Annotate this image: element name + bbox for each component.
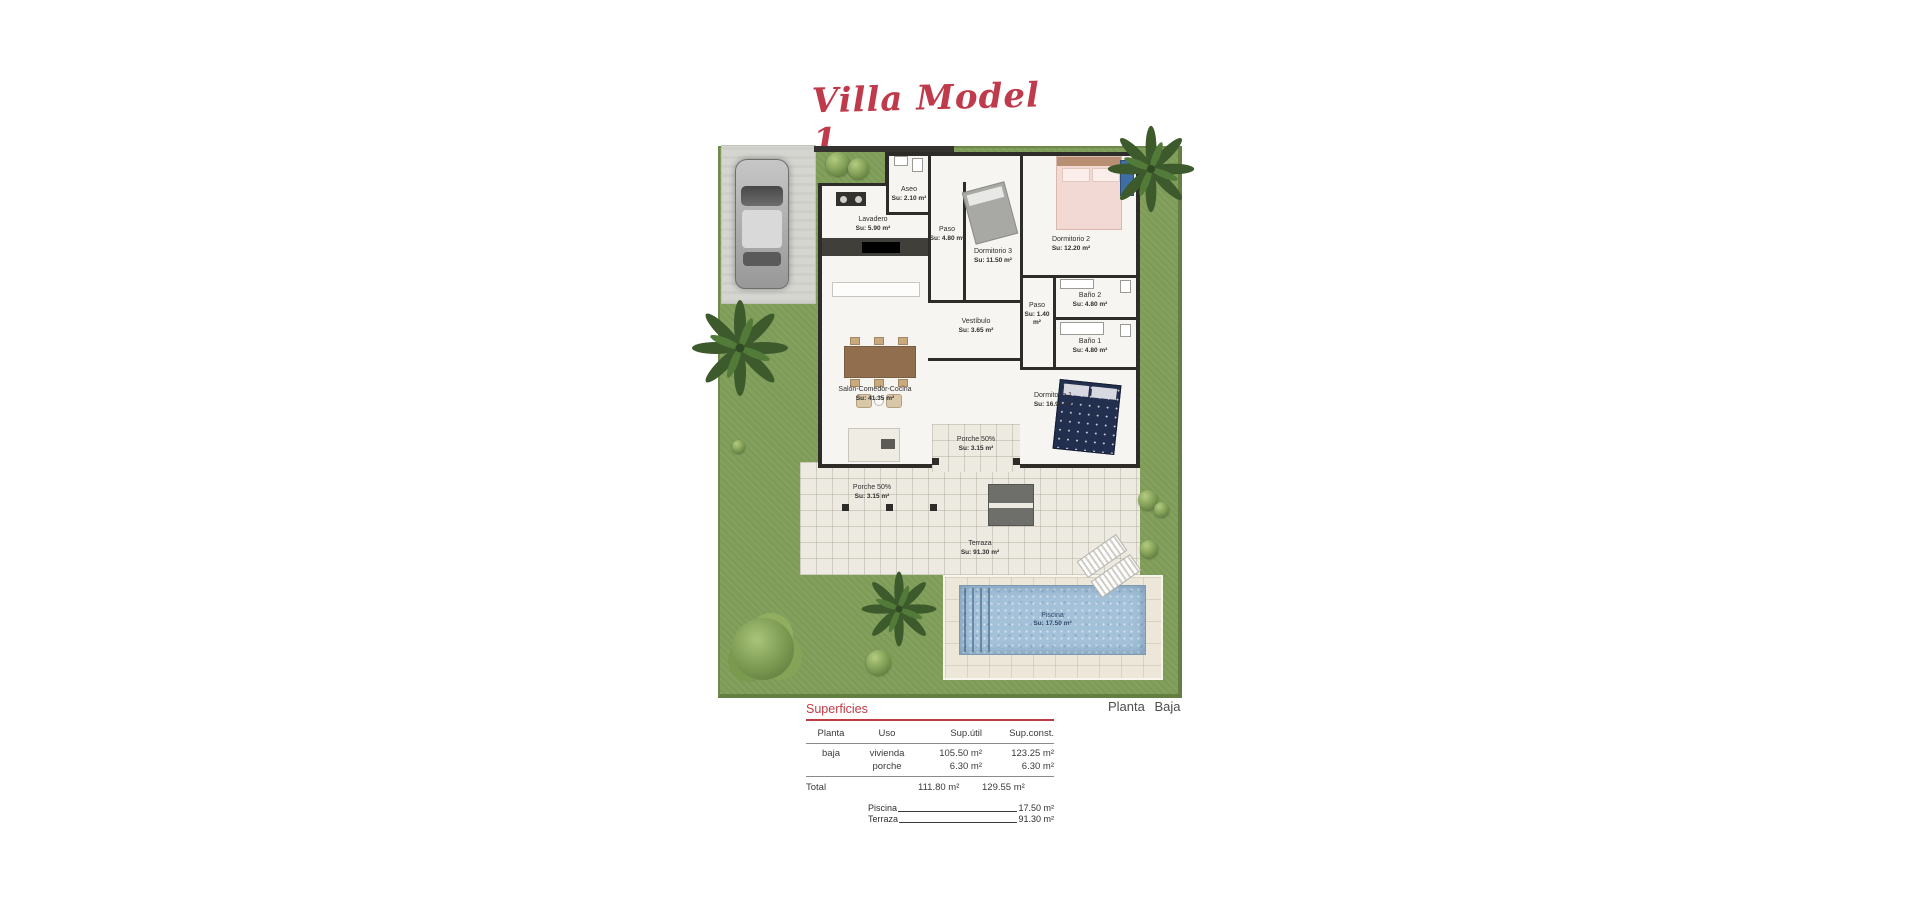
pool: Piscina Su: 17.50 m² [959, 585, 1146, 655]
dining-chair [850, 337, 860, 345]
car-rear-window [743, 252, 781, 266]
room-label-dormitorio-1: Dormitorio 1 Su: 16.95 m² [1022, 392, 1084, 409]
note-row-piscina: Piscina 17.50 m² [868, 802, 1054, 813]
palm-tree-icon [860, 570, 938, 648]
bush [866, 650, 891, 675]
wall-segment [886, 152, 889, 214]
room-label-paso: Paso Su: 4.80 m² [928, 226, 966, 243]
surfaces-heading: Superficies [806, 702, 1054, 721]
room-name: Terraza [950, 540, 1010, 549]
wall-segment [1020, 275, 1140, 278]
aseo-sink [894, 156, 908, 166]
room-name: Vestíbulo [946, 318, 1006, 327]
wall-segment [1053, 317, 1140, 320]
total-util: 111.80 m² [918, 782, 982, 793]
room-area: Su: 17.50 m² [1013, 620, 1093, 628]
bath2-toilet [1120, 280, 1131, 293]
room-area: Su: 5.90 m² [833, 225, 913, 233]
cell-planta [806, 761, 856, 772]
room-area: Su: 4.80 m² [928, 235, 966, 243]
outdoor-furniture-set [988, 484, 1034, 526]
cell-util: 105.50 m² [918, 748, 982, 759]
bush [732, 440, 745, 453]
note-label: Terraza [868, 814, 898, 824]
driveway [721, 145, 816, 304]
room-name: Aseo [888, 186, 930, 195]
room-label-bano-2: Baño 2 Su: 4.80 m² [1062, 292, 1118, 309]
car-windshield [741, 186, 783, 206]
bush [1154, 502, 1169, 517]
cooktop [862, 242, 900, 253]
total-spacer [856, 782, 918, 793]
room-label-paso-small: Paso Su: 1.40 m² [1021, 302, 1053, 327]
porch-column [1013, 458, 1020, 465]
room-area: Su: 2.10 m² [888, 195, 930, 203]
bath1-tub [1060, 322, 1104, 335]
room-area: Su: 4.80 m² [1062, 347, 1118, 355]
room-label-porche-left: Porche 50% Su: 3.15 m² [844, 484, 900, 501]
dining-chair [898, 337, 908, 345]
note-row-terraza: Terraza 91.30 m² [868, 813, 1054, 824]
palm-tree-icon [1106, 124, 1196, 214]
porch-column [886, 504, 893, 511]
room-label-lavadero: Lavadero Su: 5.90 m² [833, 216, 913, 233]
page-title: Villa Model 1 [811, 75, 1072, 134]
room-area: Su: 91.30 m² [950, 549, 1010, 557]
cell-const: 123.25 m² [982, 748, 1054, 759]
room-label-aseo: Aseo Su: 2.10 m² [888, 186, 930, 203]
aseo-toilet [912, 158, 923, 172]
floor-label: Planta Baja [1108, 699, 1181, 714]
room-area: Su: 4.80 m² [1062, 301, 1118, 309]
washer-dryer [836, 192, 866, 206]
room-label-dormitorio-3: Dormitorio 3 Su: 11.50 m² [963, 248, 1023, 265]
car-top-view-icon [735, 159, 789, 289]
wall-segment [928, 300, 1023, 303]
col-header-uso: Uso [856, 728, 918, 744]
room-area: Su: 41.35 m² [828, 395, 922, 403]
room-area: Su: 1.40 m² [1021, 311, 1053, 327]
room-name: Salón-Comedor-Cocina [828, 386, 922, 395]
bed-dormitorio-1 [1053, 379, 1122, 455]
cell-planta: baja [806, 748, 856, 759]
surfaces-table: Superficies Planta Uso Sup.útil Sup.cons… [806, 702, 1054, 793]
room-area: Su: 16.95 m² [1022, 401, 1084, 409]
room-name: Baño 1 [1062, 338, 1118, 347]
kitchen-island [832, 282, 920, 297]
porch-column [930, 504, 937, 511]
room-name: Porche 50% [844, 484, 900, 493]
car-roof [742, 210, 782, 248]
pool-steps [964, 588, 994, 652]
col-header-planta: Planta [806, 728, 856, 744]
porch-column [842, 504, 849, 511]
room-name: Dormitorio 3 [963, 248, 1023, 257]
room-name: Porche 50% [948, 436, 1004, 445]
room-area: Su: 12.20 m² [1040, 245, 1102, 253]
porch-column [932, 458, 939, 465]
note-leader-line [899, 822, 1017, 823]
room-area: Su: 11.50 m² [963, 257, 1023, 265]
surfaces-grid: Planta Uso Sup.útil Sup.const. baja vivi… [806, 728, 1054, 772]
col-header-sup-const: Sup.const. [982, 728, 1054, 744]
palm-tree-icon [690, 298, 790, 398]
total-const: 129.55 m² [982, 782, 1054, 793]
measure-notes: Piscina 17.50 m² Terraza 91.30 m² [868, 802, 1054, 824]
wall-segment [1020, 367, 1140, 370]
room-label-terraza: Terraza Su: 91.30 m² [950, 540, 1010, 557]
wall-segment [1053, 275, 1056, 367]
room-name: Paso [1021, 302, 1053, 311]
sofa [848, 428, 900, 462]
room-area: Su: 3.15 m² [844, 493, 900, 501]
room-name: Dormitorio 2 [1040, 236, 1102, 245]
dining-table [844, 346, 916, 378]
room-area: Su: 3.65 m² [946, 327, 1006, 335]
cell-uso: porche [856, 761, 918, 772]
room-label-vestibulo: Vestíbulo Su: 3.65 m² [946, 318, 1006, 335]
room-name: Baño 2 [1062, 292, 1118, 301]
surfaces-total-row: Total 111.80 m² 129.55 m² [806, 776, 1054, 793]
note-value: 91.30 m² [1018, 814, 1054, 824]
tree [732, 618, 794, 680]
room-name: Paso [928, 226, 966, 235]
total-label: Total [806, 782, 856, 793]
bush [826, 152, 850, 176]
room-label-piscina: Piscina Su: 17.50 m² [1013, 612, 1093, 629]
bush [1140, 540, 1158, 558]
room-label-porche-center: Porche 50% Su: 3.15 m² [948, 436, 1004, 453]
cell-uso: vivienda [856, 748, 918, 759]
room-name: Dormitorio 1 [1022, 392, 1084, 401]
room-label-salon-comedor-cocina: Salón-Comedor-Cocina Su: 41.35 m² [828, 386, 922, 403]
bush [848, 158, 869, 179]
bath2-sink [1060, 279, 1094, 289]
page: Villa Model 1 Piscina Su: 17.50 m² [0, 0, 1920, 920]
room-name: Piscina [1013, 612, 1093, 621]
col-header-sup-util: Sup.útil [918, 728, 982, 744]
room-name: Lavadero [833, 216, 913, 225]
cell-const: 6.30 m² [982, 761, 1054, 772]
note-leader-line [898, 811, 1017, 812]
wall-segment [886, 212, 931, 215]
cell-util: 6.30 m² [918, 761, 982, 772]
room-label-bano-1: Baño 1 Su: 4.80 m² [1062, 338, 1118, 355]
note-value: 17.50 m² [1018, 803, 1054, 813]
room-area: Su: 3.15 m² [948, 445, 1004, 453]
note-label: Piscina [868, 803, 897, 813]
wall-segment [928, 358, 1023, 361]
site-plan: Piscina Su: 17.50 m² [710, 142, 1185, 700]
room-label-dormitorio-2: Dormitorio 2 Su: 12.20 m² [1040, 236, 1102, 253]
bath1-toilet [1120, 324, 1131, 337]
dining-chair [874, 337, 884, 345]
